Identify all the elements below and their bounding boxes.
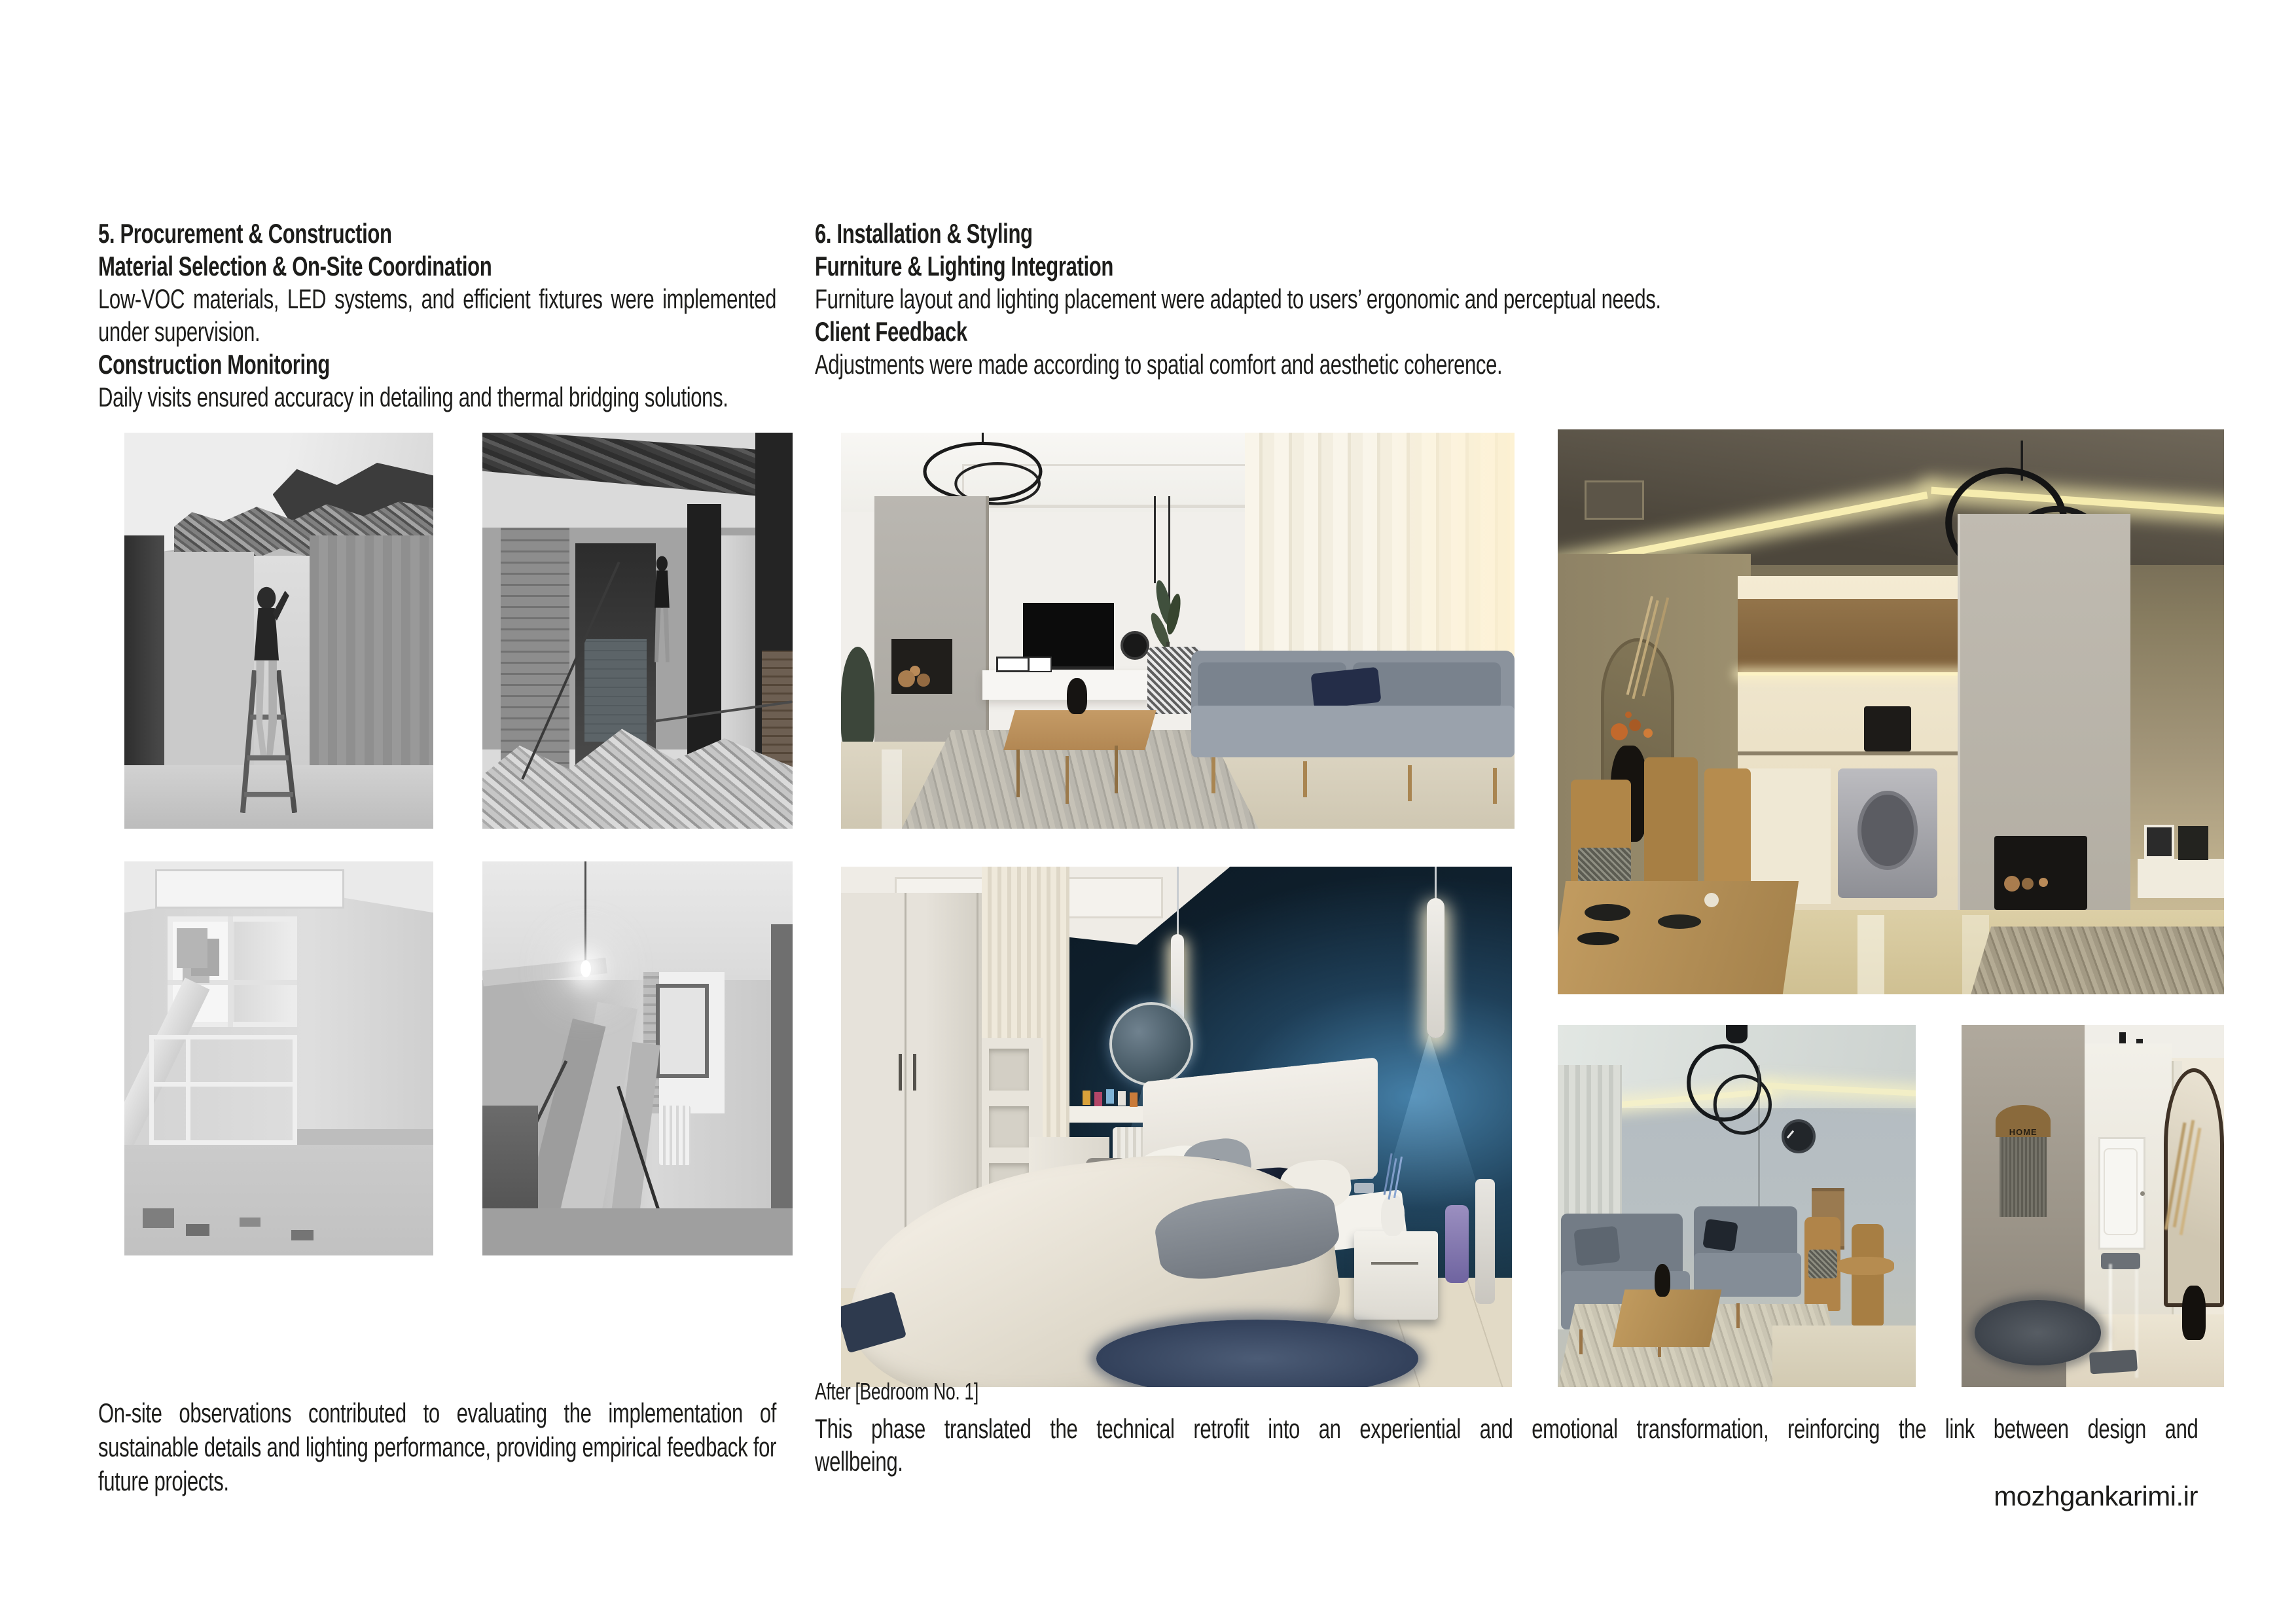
cup xyxy=(1704,893,1719,907)
website-url[interactable]: mozhgankarimi.ir xyxy=(1535,1481,2198,1512)
photo-after-sitting-area xyxy=(1558,1025,1916,1387)
dark-pillow xyxy=(1702,1218,1738,1252)
dark-mat xyxy=(2089,1349,2138,1374)
bare-bulb-light xyxy=(581,960,591,977)
section-5-heading: 5. Procurement & Construction xyxy=(98,217,776,250)
coffee-machine xyxy=(1864,706,1910,751)
floating-console xyxy=(2138,859,2224,898)
old-tiles xyxy=(584,639,647,742)
sofa-pillow xyxy=(1574,1225,1621,1266)
photo-after-living-room xyxy=(841,433,1515,829)
worker-silhouette xyxy=(643,552,681,671)
floor-reflection xyxy=(882,749,902,829)
washing-machine-door xyxy=(1857,791,1918,870)
marble-feature-wall xyxy=(874,496,989,749)
nightstand-handle xyxy=(1371,1262,1418,1265)
wall-tv xyxy=(1023,603,1114,670)
section-6-body-feedback: Adjustments were made according to spati… xyxy=(815,348,2198,381)
installation-footer-block: This phase translated the technical retr… xyxy=(815,1413,2198,1478)
section-procurement-text: 5. Procurement & Construction Material S… xyxy=(98,217,776,414)
counter-shelf xyxy=(149,1082,298,1087)
photo-before-ceiling-demolition xyxy=(124,433,433,829)
houndstooth-pad xyxy=(1808,1250,1837,1278)
door-edge xyxy=(771,924,793,1224)
pendant-cord xyxy=(1177,867,1179,939)
dining-table xyxy=(1558,881,1799,994)
under-cabinet-light xyxy=(1738,672,1977,676)
section-6-subheading-feedback: Client Feedback xyxy=(815,316,2198,348)
dark-door xyxy=(124,535,164,765)
white-appliance xyxy=(1475,1179,1496,1304)
shelf-niche xyxy=(989,1049,1030,1091)
sofa-legs xyxy=(1211,757,1215,793)
home-sign-text: HOME xyxy=(2009,1127,2037,1137)
section-installation-text: 6. Installation & Styling Furniture & Li… xyxy=(815,217,2198,381)
shelf-niche xyxy=(989,1106,1030,1148)
section-6-subheading-furniture: Furniture & Lighting Integration xyxy=(815,250,2198,283)
home-macrame-hanging: HOME xyxy=(1996,1105,2051,1138)
coffee-table xyxy=(1004,710,1157,750)
wood-dining-chair xyxy=(1852,1224,1884,1326)
ceiling-recess xyxy=(155,869,344,909)
purple-bottle xyxy=(1445,1205,1469,1283)
photo-frames xyxy=(2144,825,2174,859)
photo-frames xyxy=(996,657,1030,672)
firewood-logs xyxy=(2004,876,2020,892)
ceiling xyxy=(482,861,793,980)
bedroom-caption-block: After [Bedroom No. 1] xyxy=(815,1379,1202,1405)
fireplace-niche xyxy=(891,639,952,695)
procurement-footer-text: On-site observations contributed to eval… xyxy=(98,1396,776,1498)
pendant-rod xyxy=(1154,496,1156,583)
macrame-fringe xyxy=(2000,1137,2047,1217)
floor-reflection xyxy=(1857,915,1884,994)
dark-marble-column xyxy=(687,504,721,757)
perfume-bottles xyxy=(1083,1091,1090,1105)
floor-debris xyxy=(143,1208,173,1228)
floor xyxy=(482,1208,793,1255)
section-5-body-materials: Low-VOC materials, LED systems, and effi… xyxy=(98,283,776,348)
runner-mat xyxy=(2101,1253,2140,1269)
skirting xyxy=(297,1129,433,1145)
textured-wall xyxy=(310,535,433,789)
black-vase xyxy=(2182,1286,2206,1340)
plant xyxy=(841,647,874,749)
photo-caption: After [Bedroom No. 1] xyxy=(815,1379,1202,1405)
section-6-heading: 6. Installation & Styling xyxy=(815,217,2198,250)
door-panel xyxy=(2104,1148,2138,1235)
rug-edge xyxy=(1971,926,2224,994)
marble-tile-floor xyxy=(124,1145,433,1255)
photo-after-hallway: HOME xyxy=(1962,1025,2224,1387)
black-vase xyxy=(1655,1264,1671,1297)
installation-footer-line2: wellbeing. xyxy=(815,1445,2198,1478)
round-shag-rug xyxy=(1975,1300,2100,1365)
section-5-body-monitoring: Daily visits ensured accuracy in detaili… xyxy=(98,381,776,414)
glossy-floor xyxy=(1772,1326,1916,1387)
section-5-subheading-monitoring: Construction Monitoring xyxy=(98,348,776,381)
installation-footer-line1: This phase translated the technical retr… xyxy=(815,1413,2198,1445)
navy-pillow xyxy=(1311,667,1382,710)
back-window xyxy=(656,984,709,1078)
photo-before-stripped-kitchen xyxy=(124,861,433,1255)
window-view-buildings xyxy=(177,928,207,967)
round-mirror xyxy=(1109,1002,1193,1086)
dismantled-counter-frame xyxy=(149,1035,298,1146)
procurement-footer-block: On-site observations contributed to eval… xyxy=(98,1396,776,1498)
pendant-cord xyxy=(584,861,586,964)
photo-before-room-hanging-bulb xyxy=(482,861,793,1255)
vase xyxy=(1381,1195,1405,1236)
radiator xyxy=(659,1106,690,1164)
ceiling-vent xyxy=(1585,480,1645,520)
photo-after-bedroom-1 xyxy=(841,867,1512,1387)
worker-silhouette xyxy=(236,583,297,757)
photo-after-kitchen-dining xyxy=(1558,429,2224,994)
fireplace-brick xyxy=(762,651,793,770)
tube-pendant-light xyxy=(1427,898,1445,1039)
section-5-subheading-material: Material Selection & On-Site Coordinatio… xyxy=(98,250,776,283)
exposed-beam xyxy=(482,433,793,514)
nightstand xyxy=(1354,1231,1438,1320)
coffee-table xyxy=(1613,1290,1721,1347)
section-6-body-furniture: Furniture layout and lighting placement … xyxy=(815,283,2198,316)
sofa-seat xyxy=(1191,706,1515,757)
upper-wood-cabinets xyxy=(1738,599,1977,672)
round-table-edge xyxy=(1837,1257,1895,1275)
black-vase xyxy=(1067,678,1087,713)
table-legs xyxy=(1016,749,1020,797)
black-placemats xyxy=(1585,904,1630,921)
fireplace-niche xyxy=(1994,836,2088,909)
portfolio-page: 5. Procurement & Construction Material S… xyxy=(0,0,2296,1624)
photo-before-wall-demolition xyxy=(482,433,793,829)
ceiling-spotlights xyxy=(2119,1032,2126,1044)
arch-floor-mirror xyxy=(2164,1068,2224,1307)
sofa-legs xyxy=(1579,1329,1583,1355)
counter-upright xyxy=(186,1035,190,1146)
countertop xyxy=(1738,751,1977,755)
window-mullion xyxy=(228,916,233,1027)
wardrobe-handles xyxy=(899,1054,902,1091)
